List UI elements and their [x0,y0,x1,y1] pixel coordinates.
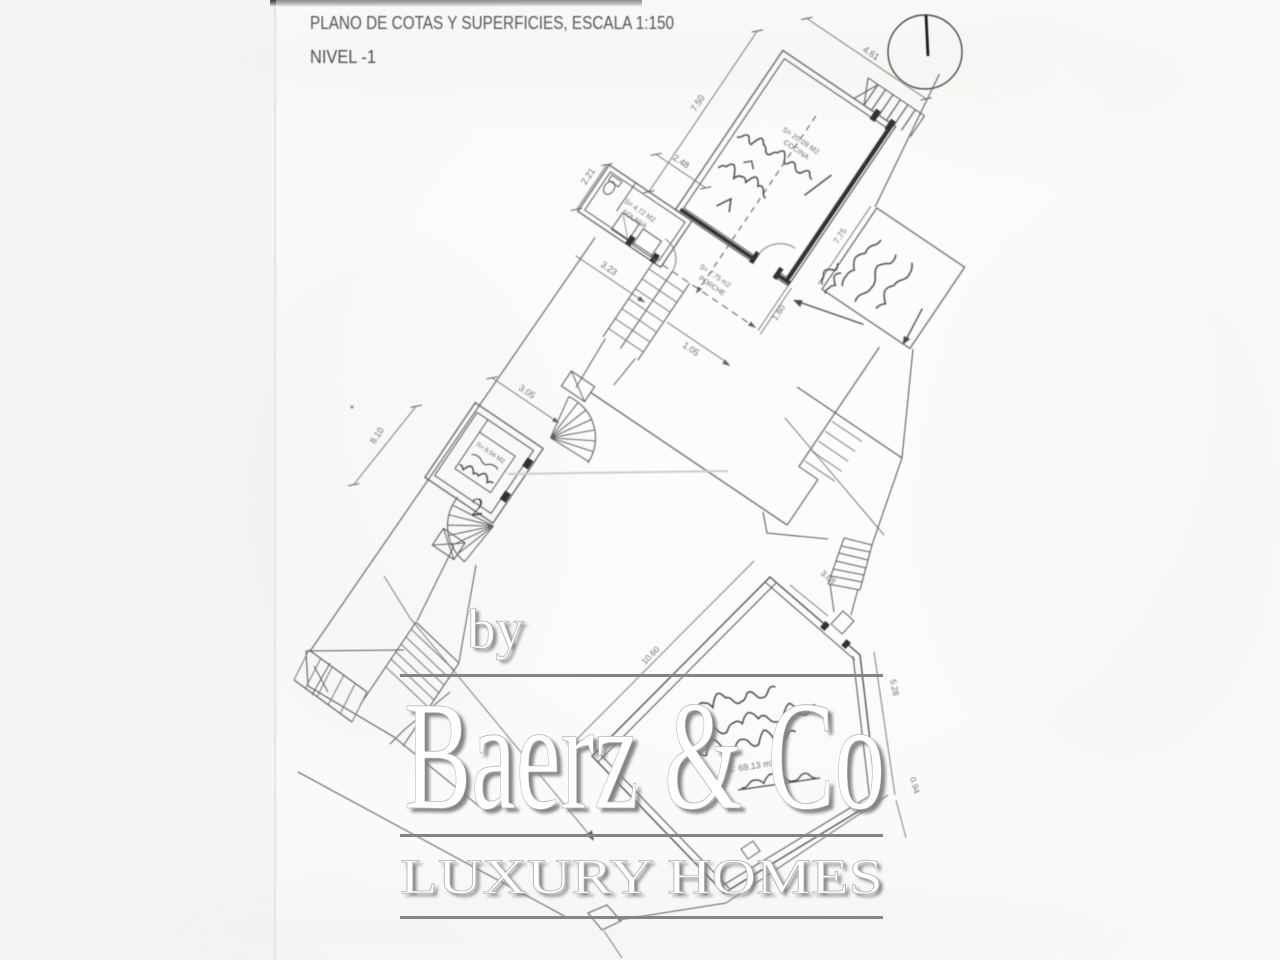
svg-text:Baerz & Co: Baerz & Co [404,669,885,842]
svg-text:NIVEL -1: NIVEL -1 [310,47,376,67]
svg-text:by: by [467,598,525,661]
svg-text:LUXURY HOMES: LUXURY HOMES [400,848,883,904]
svg-text:PLANO DE COTAS Y SUPERFICIES,: PLANO DE COTAS Y SUPERFICIES, ESCALA 1:1… [310,13,674,33]
